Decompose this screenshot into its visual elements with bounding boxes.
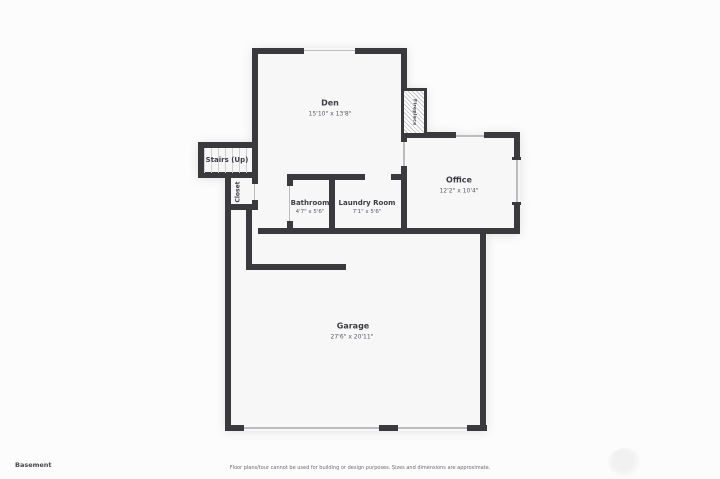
wall-segment bbox=[514, 132, 520, 160]
office-label: Office bbox=[446, 176, 472, 185]
wall-segment bbox=[514, 203, 520, 234]
wall-segment bbox=[480, 234, 486, 431]
fireplace-box: Fireplace bbox=[401, 88, 427, 136]
window-door-line bbox=[244, 427, 379, 429]
fireplace-label: Fireplace bbox=[412, 99, 417, 126]
wall-segment bbox=[252, 48, 304, 54]
window-door-line bbox=[254, 184, 255, 200]
floor-plan: Fireplace Den 15'10" x 13'8" Office 12'2… bbox=[0, 0, 720, 479]
window-door-line bbox=[516, 160, 518, 203]
garage-dimensions: 27'6" x 20'11" bbox=[331, 334, 374, 341]
wall-segment bbox=[287, 174, 365, 180]
bathroom-label: Bathroom bbox=[291, 199, 330, 207]
wall-segment bbox=[287, 221, 293, 234]
window-sill-tick bbox=[512, 202, 521, 205]
wall-segment bbox=[287, 174, 293, 186]
window-door-line bbox=[289, 186, 290, 221]
room-fill bbox=[402, 135, 520, 234]
office-dimensions: 12'2" x 10'4" bbox=[439, 188, 478, 195]
wall-segment bbox=[355, 48, 407, 54]
garage-label: Garage bbox=[337, 322, 369, 331]
wall-segment bbox=[225, 172, 231, 431]
window-door-line bbox=[398, 427, 467, 429]
window-sill-tick bbox=[512, 157, 521, 160]
window-door-line bbox=[304, 50, 355, 52]
wall-segment bbox=[246, 264, 346, 270]
wall-segment bbox=[252, 200, 258, 210]
wall-segment bbox=[246, 210, 252, 270]
closet-label: Closet bbox=[235, 181, 242, 202]
wall-segment bbox=[401, 166, 407, 228]
den-dimensions: 15'10" x 13'8" bbox=[309, 111, 352, 118]
window-door-line bbox=[403, 142, 405, 166]
laundry-room-dimensions: 7'1" x 5'6" bbox=[353, 209, 382, 215]
wall-segment bbox=[401, 48, 407, 90]
stairs-up-label: Stairs (Up) bbox=[206, 156, 249, 164]
photographer-watermark-logo bbox=[608, 448, 642, 476]
window-door-line bbox=[456, 135, 484, 137]
bathroom-dimensions: 4'7" x 5'6" bbox=[296, 209, 325, 215]
wall-segment bbox=[329, 174, 335, 234]
wall-segment bbox=[379, 425, 398, 431]
laundry-room-label: Laundry Room bbox=[339, 199, 396, 207]
den-label: Den bbox=[321, 99, 339, 108]
